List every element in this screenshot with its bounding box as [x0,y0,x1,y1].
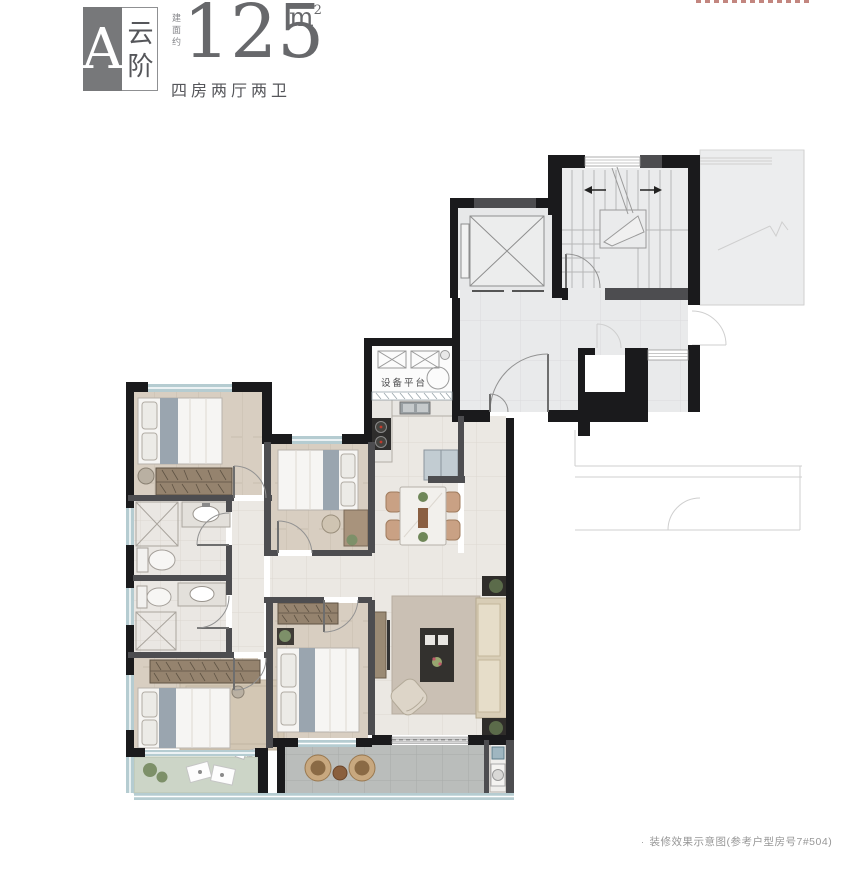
sliding-door [392,737,468,744]
bedroom-3-furniture [138,660,284,759]
platform-vent [372,392,452,400]
utility-sink [492,747,504,759]
living-room-furniture [374,576,510,738]
equipment-platform-label: 设备平台 [381,377,427,389]
floor-plan: 设备平台 [0,0,859,873]
shaft-niche [585,355,625,392]
tv-cabinet [374,612,386,678]
footer-note: ·装修效果示意图(参考户型房号7#504) [641,834,832,849]
elevator [461,216,544,291]
equipment-platform: 设备平台 [372,346,452,392]
floorplan-page: A 云阶 建面约 125 m2 四房两厅两卫 [0,0,859,873]
utility-fixtures [490,742,506,792]
inner-corridor-floor [232,501,264,652]
wardrobe-1 [156,468,232,495]
foyer-floor [464,416,506,560]
footer-bullet: · [641,837,645,847]
hallway-floor [270,556,372,597]
bedroom-1-furniture [138,398,232,495]
